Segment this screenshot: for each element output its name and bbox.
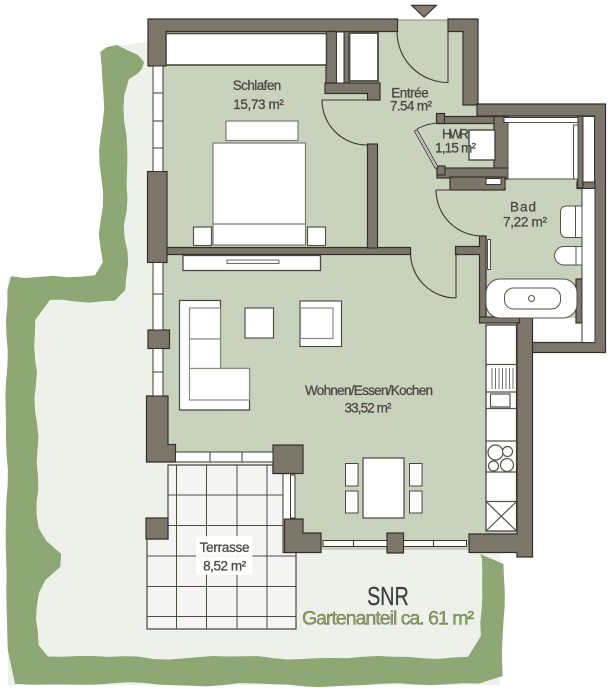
svg-text:15,73 m²: 15,73 m² [233, 97, 284, 112]
svg-text:7,22 m²: 7,22 m² [503, 215, 548, 230]
svg-text:Wohnen/Essen/Kochen: Wohnen/Essen/Kochen [305, 383, 433, 398]
svg-text:HWR: HWR [442, 127, 469, 142]
svg-text:7.54 m²: 7.54 m² [390, 99, 433, 114]
svg-text:Terrasse: Terrasse [200, 540, 250, 555]
svg-text:Schlafen: Schlafen [233, 78, 282, 93]
svg-text:Gartenanteil ca. 61 m²: Gartenanteil ca. 61 m² [302, 608, 475, 630]
svg-text:SNR: SNR [367, 581, 409, 610]
svg-text:33,52 m²: 33,52 m² [345, 401, 393, 416]
svg-text:1,15 m²: 1,15 m² [435, 141, 477, 156]
svg-text:8,52 m²: 8,52 m² [203, 559, 247, 574]
svg-text:Bad: Bad [510, 200, 536, 215]
